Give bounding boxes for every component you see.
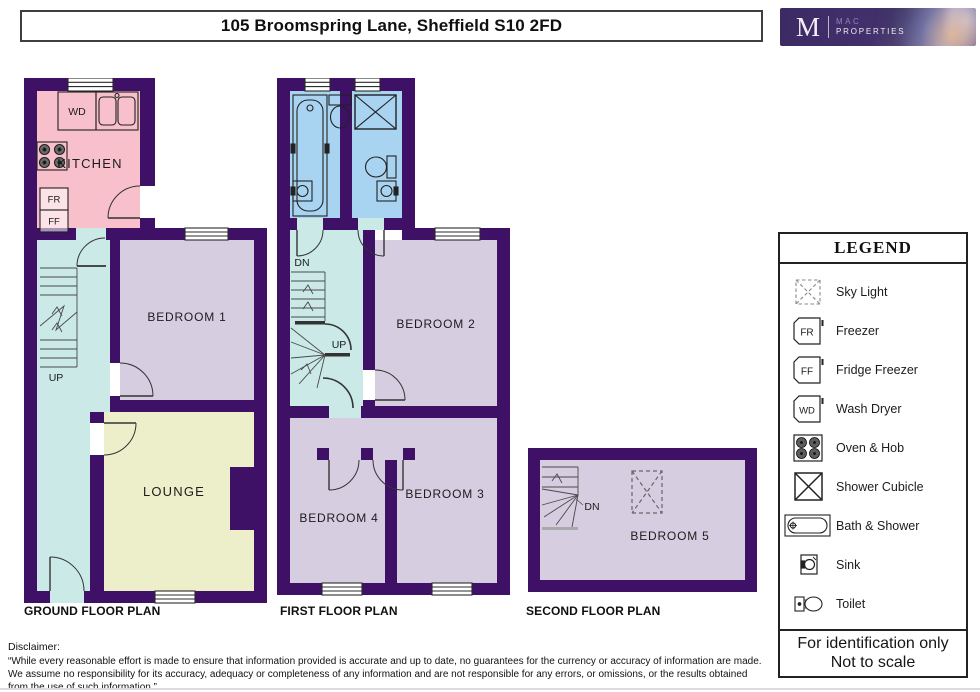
svg-text:WD: WD bbox=[799, 405, 815, 416]
legend-item-wash-dryer: WD Wash Dryer bbox=[780, 389, 966, 428]
logo-wordmark: MAC PROPERTIES bbox=[836, 17, 905, 37]
legend-label: Fridge Freezer bbox=[836, 363, 918, 377]
bedroom5-room bbox=[540, 460, 745, 580]
legend-label: Sky Light bbox=[836, 285, 887, 299]
legend-label: Wash Dryer bbox=[836, 402, 902, 416]
legend-items: Sky Light FR Freezer FF Fridge Freezer bbox=[780, 264, 966, 629]
lounge-window-icon bbox=[155, 591, 195, 603]
bedroom2-window-icon bbox=[435, 228, 480, 240]
legend-label: Freezer bbox=[836, 324, 879, 338]
toilet-icon bbox=[780, 590, 836, 618]
bedroom5-label: BEDROOM 5 bbox=[630, 529, 709, 543]
wash-dryer-icon: WD bbox=[780, 394, 836, 424]
footer-line-1: For identification only bbox=[780, 634, 966, 653]
legend-item-toilet: Toilet bbox=[780, 584, 966, 623]
sink-icon bbox=[780, 551, 836, 579]
legend-label: Sink bbox=[836, 558, 860, 572]
fridge-freezer-label: FF bbox=[48, 217, 60, 228]
ground-up-label: UP bbox=[49, 372, 64, 384]
legend-item-sink: Sink bbox=[780, 545, 966, 584]
legend-label: Toilet bbox=[836, 597, 865, 611]
legend-box: LEGEND Sky Light FR Freezer bbox=[778, 232, 968, 678]
freezer-label: FR bbox=[48, 195, 61, 206]
oven-hob-icon bbox=[780, 433, 836, 463]
second-dn-label: DN bbox=[584, 501, 599, 513]
kitchen-window-icon bbox=[68, 78, 113, 91]
footer-line-2: Not to scale bbox=[780, 653, 966, 672]
legend-footer: For identification only Not to scale bbox=[780, 629, 966, 676]
disclaimer: Disclaimer: “While every reasonable effo… bbox=[8, 641, 764, 692]
freezer-icon: FR bbox=[780, 316, 836, 346]
address-title-bar: 105 Broomspring Lane, Sheffield S10 2FD bbox=[20, 10, 763, 42]
legend-title: LEGEND bbox=[780, 234, 966, 264]
floorplan-page: 105 Broomspring Lane, Sheffield S10 2FD … bbox=[0, 0, 980, 692]
bedroom2-label: BEDROOM 2 bbox=[396, 317, 475, 331]
svg-text:FF: FF bbox=[801, 366, 813, 377]
ground-floor-plan: KITCHEN BEDROOM 1 LOUNGE WD FR FF UP bbox=[24, 78, 268, 606]
wash-dryer-label: WD bbox=[68, 106, 86, 118]
first-floor-plan-label: FIRST FLOOR PLAN bbox=[280, 604, 398, 618]
kitchen-label: KITCHEN bbox=[57, 156, 122, 171]
legend-item-shower-cubicle: Shower Cubicle bbox=[780, 467, 966, 506]
bedroom4-label: BEDROOM 4 bbox=[299, 511, 378, 525]
legend-item-freezer: FR Freezer bbox=[780, 311, 966, 350]
ground-floor-plan-label: GROUND FLOOR PLAN bbox=[24, 604, 160, 618]
bottom-scan-line bbox=[0, 688, 980, 690]
logo-divider bbox=[828, 16, 829, 38]
first-up-label: UP bbox=[332, 339, 347, 351]
first-floor-plan: BEDROOM 2 BEDROOM 3 BEDROOM 4 DN UP bbox=[277, 78, 510, 598]
second-floor-plan-label: SECOND FLOOR PLAN bbox=[526, 604, 660, 618]
bath-shower-icon bbox=[780, 512, 836, 540]
disclaimer-body: “While every reasonable effort is made t… bbox=[8, 655, 764, 692]
address-title: 105 Broomspring Lane, Sheffield S10 2FD bbox=[221, 16, 562, 36]
logo-name-bottom: PROPERTIES bbox=[836, 27, 905, 37]
first-dn-label: DN bbox=[294, 257, 309, 269]
legend-label: Bath & Shower bbox=[836, 519, 919, 533]
disclaimer-heading: Disclaimer: bbox=[8, 641, 764, 653]
bedroom4-window-icon bbox=[322, 583, 362, 595]
legend-item-sky-light: Sky Light bbox=[780, 272, 966, 311]
agency-logo: M MAC PROPERTIES bbox=[780, 8, 976, 46]
bathroom2-window-icon bbox=[355, 78, 380, 91]
bathroom1-window-icon bbox=[305, 78, 330, 91]
sky-light-icon bbox=[780, 277, 836, 307]
second-floor-plan: DN BEDROOM 5 bbox=[520, 443, 760, 595]
svg-text:FR: FR bbox=[800, 327, 813, 338]
shower-cubicle-icon bbox=[780, 471, 836, 503]
legend-item-fridge-freezer: FF Fridge Freezer bbox=[780, 350, 966, 389]
logo-name-top: MAC bbox=[836, 17, 905, 27]
legend-item-oven-hob: Oven & Hob bbox=[780, 428, 966, 467]
legend-label: Oven & Hob bbox=[836, 441, 904, 455]
bedroom3-window-icon bbox=[432, 583, 472, 595]
bedroom1-window-icon bbox=[185, 228, 228, 240]
logo-monogram: M bbox=[796, 8, 820, 46]
bedroom3-label: BEDROOM 3 bbox=[405, 487, 484, 501]
legend-label: Shower Cubicle bbox=[836, 480, 924, 494]
legend-item-bath-shower: Bath & Shower bbox=[780, 506, 966, 545]
fridge-freezer-icon: FF bbox=[780, 355, 836, 385]
bedroom1-label: BEDROOM 1 bbox=[147, 310, 226, 324]
lounge-label: LOUNGE bbox=[143, 484, 205, 499]
